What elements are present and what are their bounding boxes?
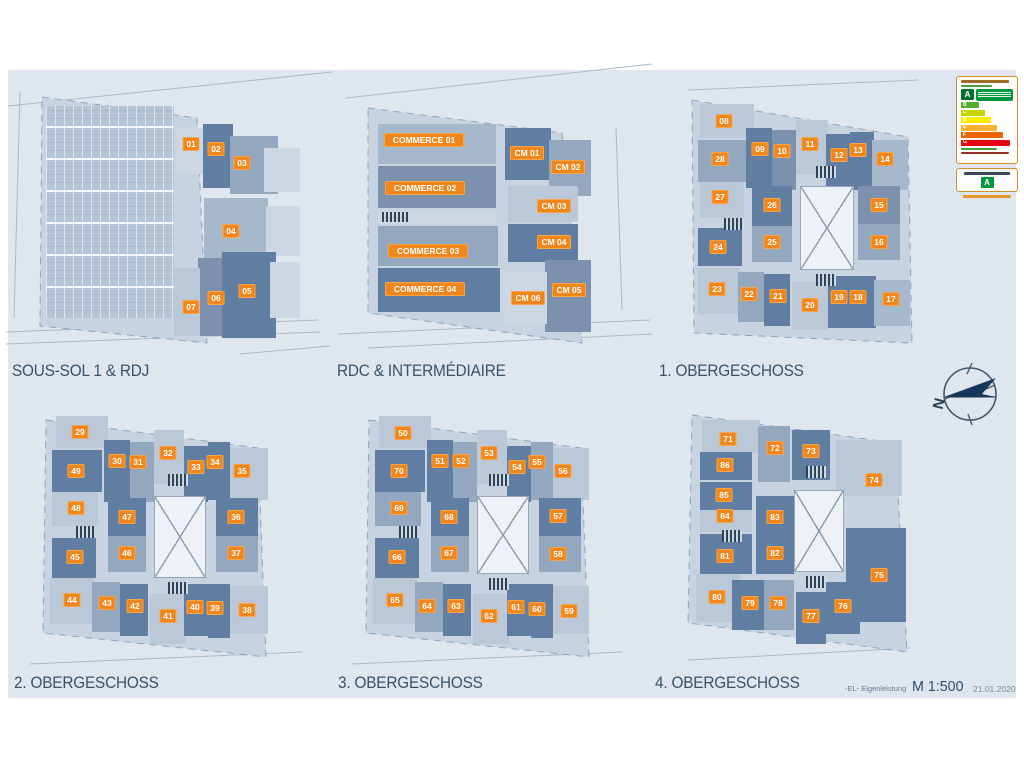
- unit-label: 85: [716, 488, 733, 502]
- energy-footnote-line-1: [961, 148, 997, 150]
- unit-label: 80: [709, 590, 726, 604]
- parking-area: [46, 106, 174, 318]
- unit-label: 53: [481, 446, 498, 460]
- date-text: 21.01.2020: [973, 684, 1016, 694]
- energy-caption-line: [963, 195, 1010, 198]
- unit-label: 18: [850, 290, 867, 304]
- unit-label: 30: [109, 454, 126, 468]
- unit-label: 40: [187, 600, 204, 614]
- unit-block: [427, 440, 453, 502]
- unit-label: 09: [752, 142, 769, 156]
- stair-core: [76, 526, 94, 538]
- credit-text: -EL- Eigenleistung: [845, 684, 906, 693]
- unit-block: [850, 132, 874, 190]
- unit-label: 86: [717, 458, 734, 472]
- energy-bar-f: F: [961, 132, 1003, 138]
- unit-label: 78: [770, 596, 787, 610]
- unit-block: [264, 148, 300, 192]
- unit-label: 51: [432, 454, 449, 468]
- unit-label: 67: [441, 546, 458, 560]
- plan-title-sous-sol: SOUS-SOL 1 & RDJ: [12, 362, 149, 381]
- unit-label: 60: [529, 602, 546, 616]
- unit-label: 49: [68, 464, 85, 478]
- unit-label: 48: [68, 501, 85, 515]
- unit-block: [507, 446, 531, 502]
- stair-core: [489, 578, 509, 590]
- unit-label: 76: [835, 599, 852, 613]
- unit-label: 68: [441, 510, 458, 524]
- unit-label: 45: [67, 550, 84, 564]
- plan-title-obergeschoss-2: 2. OBERGESCHOSS: [14, 674, 159, 693]
- unit-label: 56: [555, 464, 572, 478]
- unit-label: 07: [183, 300, 200, 314]
- north-compass: N: [932, 358, 1006, 432]
- unit-label: 57: [550, 509, 567, 523]
- unit-label: 50: [395, 426, 412, 440]
- unit-label: 42: [127, 599, 144, 613]
- stair-core: [724, 218, 744, 230]
- unit-label: 14: [877, 152, 894, 166]
- unit-label: 04: [223, 224, 240, 238]
- unit-label: 59: [561, 604, 578, 618]
- unit-label: 03: [234, 156, 251, 170]
- unit-label: 01: [183, 137, 200, 151]
- unit-label: 37: [228, 546, 245, 560]
- unit-label: 74: [866, 473, 883, 487]
- unit-label: 64: [419, 599, 436, 613]
- unit-block: [104, 440, 130, 502]
- unit-label: 33: [188, 460, 205, 474]
- courtyard: [800, 186, 854, 270]
- unit-label: 27: [712, 190, 729, 204]
- plan-sheet: 01020304050607COMMERCE 01COMMERCE 02COMM…: [0, 0, 1024, 768]
- plan-title-obergeschoss-1: 1. OBERGESCHOSS: [659, 362, 804, 381]
- unit-label: COMMERCE 02: [385, 181, 465, 195]
- unit-label: 28: [712, 152, 729, 166]
- unit-label: 77: [803, 609, 820, 623]
- unit-label: 13: [850, 143, 867, 157]
- unit-block: [270, 262, 300, 318]
- unit-label: 11: [802, 137, 819, 151]
- unit-label: 69: [391, 501, 408, 515]
- unit-label: 58: [550, 547, 567, 561]
- energy-class-a-chip: [976, 89, 1013, 101]
- unit-block: [772, 130, 796, 190]
- unit-label: 22: [741, 287, 758, 301]
- unit-block: [266, 206, 300, 256]
- unit-label: 39: [207, 601, 224, 615]
- unit-label: CM 02: [551, 160, 585, 174]
- unit-block: [203, 124, 233, 188]
- unit-label: 82: [767, 546, 784, 560]
- unit-label: 10: [774, 144, 791, 158]
- energy-card-emissions: A: [956, 168, 1018, 192]
- unit-label: 84: [717, 509, 734, 523]
- unit-block: [826, 134, 852, 192]
- unit-label: 31: [130, 455, 147, 469]
- unit-label: 32: [160, 446, 177, 460]
- unit-block: [746, 128, 772, 188]
- energy-bar-e: E: [961, 125, 997, 131]
- unit-label: COMMERCE 01: [384, 133, 464, 147]
- emissions-class-a-badge: A: [981, 177, 994, 188]
- emissions-title-line: [964, 172, 1010, 175]
- unit-blocks-layer: 01020304050607COMMERCE 01COMMERCE 02COMM…: [0, 0, 1024, 768]
- courtyard: [154, 496, 206, 578]
- courtyard: [794, 490, 844, 572]
- unit-label: 06: [208, 291, 225, 305]
- energy-card-consumption: A BCDEFG: [956, 76, 1018, 164]
- plan-title-rdc: RDC & INTERMÉDIAIRE: [337, 362, 506, 381]
- energy-bar-b: B: [961, 102, 979, 108]
- stair-core: [489, 474, 509, 486]
- scale-text: M 1:500: [912, 678, 963, 695]
- unit-label: 41: [160, 609, 177, 623]
- unit-label: 43: [99, 596, 116, 610]
- unit-label: 35: [234, 464, 251, 478]
- unit-label: 19: [831, 290, 848, 304]
- energy-bar-d: D: [961, 117, 991, 123]
- unit-label: 47: [119, 510, 136, 524]
- unit-label: 66: [389, 550, 406, 564]
- stair-core: [816, 166, 836, 178]
- unit-label: 29: [72, 425, 89, 439]
- energy-rating-label: A BCDEFG A: [956, 76, 1018, 198]
- unit-label: 21: [770, 289, 787, 303]
- unit-label: 24: [710, 240, 727, 254]
- unit-label: 65: [387, 593, 404, 607]
- energy-subtitle-line: [961, 85, 992, 87]
- unit-block: [836, 440, 902, 496]
- unit-label: 70: [391, 464, 408, 478]
- unit-label: COMMERCE 03: [388, 244, 468, 258]
- unit-block: [176, 128, 206, 174]
- energy-title-line: [961, 80, 1009, 83]
- unit-label: 52: [453, 454, 470, 468]
- unit-label: CM 06: [511, 291, 545, 305]
- unit-label: 02: [208, 142, 225, 156]
- unit-block: [531, 442, 553, 500]
- stair-core: [382, 212, 408, 222]
- stair-core: [806, 576, 826, 588]
- unit-label: 62: [481, 609, 498, 623]
- plan-title-obergeschoss-3: 3. OBERGESCHOSS: [338, 674, 483, 693]
- stair-core: [816, 274, 836, 286]
- unit-label: 23: [709, 282, 726, 296]
- energy-bar-c: C: [961, 110, 985, 116]
- unit-label: 83: [767, 510, 784, 524]
- unit-label: 44: [64, 593, 81, 607]
- stair-core: [168, 582, 188, 594]
- energy-bar-g: G: [961, 140, 1010, 146]
- unit-label: CM 04: [537, 235, 571, 249]
- unit-label: 75: [871, 568, 888, 582]
- unit-block: [208, 442, 230, 500]
- stair-core: [399, 526, 417, 538]
- unit-label: 46: [119, 546, 136, 560]
- unit-label: 55: [529, 455, 546, 469]
- unit-block: [130, 442, 154, 502]
- unit-label: 72: [767, 441, 784, 455]
- unit-block: [453, 442, 477, 502]
- courtyard: [477, 496, 529, 574]
- unit-label: 63: [448, 599, 465, 613]
- plan-title-obergeschoss-4: 4. OBERGESCHOSS: [655, 674, 800, 693]
- unit-label: 25: [764, 235, 781, 249]
- unit-label: 36: [228, 510, 245, 524]
- unit-label: 15: [871, 198, 888, 212]
- unit-label: 71: [720, 432, 737, 446]
- unit-label: 61: [508, 600, 525, 614]
- unit-label: 26: [764, 198, 781, 212]
- stair-core: [168, 474, 188, 486]
- unit-label: COMMERCE 04: [385, 282, 465, 296]
- stair-core: [722, 530, 742, 542]
- unit-label: 73: [803, 444, 820, 458]
- unit-label: 05: [239, 284, 256, 298]
- energy-bars: BCDEFG: [961, 102, 1013, 146]
- unit-label: 12: [831, 148, 848, 162]
- unit-label: 16: [871, 235, 888, 249]
- energy-class-a-badge: A: [961, 89, 974, 100]
- unit-label: 34: [207, 455, 224, 469]
- unit-label: CM 05: [552, 283, 586, 297]
- unit-label: CM 01: [510, 146, 544, 160]
- unit-label: 38: [239, 603, 256, 617]
- unit-label: 08: [716, 114, 733, 128]
- unit-label: 81: [717, 549, 734, 563]
- energy-footnote-line-2: [961, 152, 1009, 155]
- unit-label: 17: [883, 292, 900, 306]
- unit-label: 79: [742, 596, 759, 610]
- unit-label: CM 03: [537, 199, 571, 213]
- stair-core: [806, 466, 826, 478]
- energy-class-a-row: A: [961, 89, 1013, 101]
- unit-label: 20: [802, 298, 819, 312]
- unit-label: 54: [509, 460, 526, 474]
